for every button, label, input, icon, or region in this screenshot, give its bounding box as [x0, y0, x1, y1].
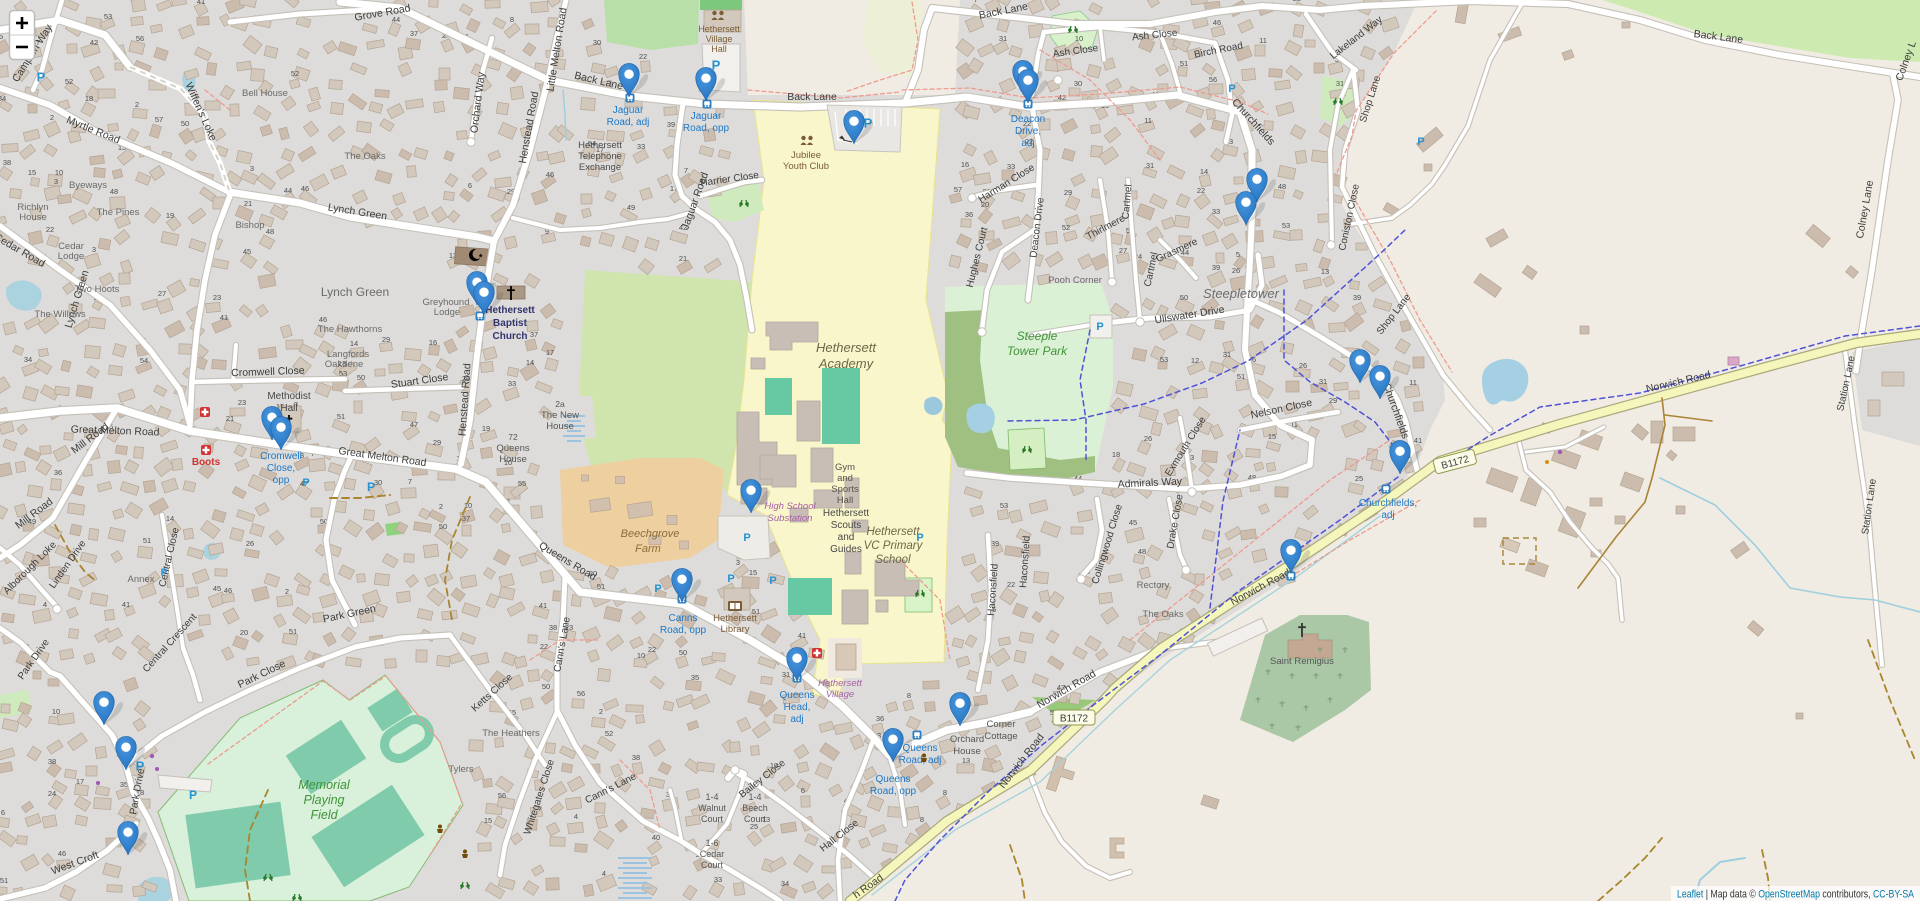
svg-text:Head,: Head,	[784, 702, 811, 713]
svg-text:P: P	[769, 575, 776, 587]
svg-text:P: P	[1417, 136, 1424, 148]
svg-text:31: 31	[1223, 350, 1231, 359]
svg-text:14: 14	[166, 514, 174, 523]
svg-text:Academy: Academy	[818, 356, 875, 371]
svg-text:Memorial: Memorial	[298, 778, 351, 792]
svg-text:39: 39	[667, 120, 675, 129]
svg-text:2: 2	[285, 587, 289, 596]
svg-text:14: 14	[350, 339, 358, 348]
svg-text:27: 27	[1119, 246, 1127, 255]
svg-text:Queens: Queens	[496, 443, 530, 454]
svg-text:4: 4	[43, 600, 47, 609]
svg-text:Gym: Gym	[835, 462, 855, 473]
svg-text:46: 46	[319, 315, 327, 324]
svg-text:2: 2	[135, 100, 139, 109]
svg-text:Cedar: Cedar	[700, 849, 725, 859]
svg-text:Guides: Guides	[830, 544, 862, 555]
svg-text:48: 48	[1278, 182, 1286, 191]
svg-text:42: 42	[90, 38, 98, 47]
svg-text:P: P	[1096, 321, 1103, 333]
svg-text:Youth Club: Youth Club	[783, 161, 829, 172]
svg-text:2: 2	[50, 113, 54, 122]
svg-text:Jubilee: Jubilee	[791, 150, 821, 161]
svg-text:6: 6	[468, 181, 472, 190]
svg-text:34: 34	[24, 355, 32, 364]
svg-text:6: 6	[1, 808, 5, 817]
svg-text:Exchange: Exchange	[579, 162, 621, 173]
svg-text:21: 21	[679, 254, 687, 263]
svg-text:High School: High School	[764, 501, 816, 512]
svg-text:55: 55	[518, 479, 526, 488]
svg-text:24: 24	[48, 789, 56, 798]
svg-text:33: 33	[714, 875, 722, 884]
svg-text:Cromwell Close: Cromwell Close	[231, 365, 305, 380]
svg-text:Boots: Boots	[192, 457, 221, 468]
svg-text:18: 18	[85, 94, 93, 103]
svg-text:22: 22	[1007, 580, 1015, 589]
svg-text:Library: Library	[720, 624, 749, 635]
svg-text:Baptist: Baptist	[493, 318, 528, 329]
svg-text:14: 14	[526, 358, 534, 367]
svg-text:41: 41	[197, 0, 205, 6]
svg-text:48: 48	[110, 187, 118, 196]
svg-text:2: 2	[439, 502, 443, 511]
svg-text:Drive,: Drive,	[1015, 126, 1041, 137]
svg-text:Road, opp: Road, opp	[683, 123, 730, 134]
svg-text:2: 2	[599, 707, 603, 716]
svg-text:36: 36	[54, 468, 62, 477]
svg-text:Close,: Close,	[267, 463, 295, 474]
svg-text:Two Hoots: Two Hoots	[75, 284, 120, 295]
svg-text:1-6: 1-6	[705, 838, 718, 848]
svg-text:14: 14	[135, 0, 143, 1]
svg-text:11: 11	[1409, 378, 1417, 387]
svg-text:40: 40	[652, 833, 660, 842]
svg-text:41: 41	[539, 601, 547, 610]
svg-text:17: 17	[546, 348, 554, 357]
svg-text:31: 31	[1319, 377, 1327, 386]
svg-text:Cromwell: Cromwell	[260, 451, 302, 462]
svg-text:Oakdene: Oakdene	[325, 359, 364, 370]
svg-text:Playing: Playing	[304, 793, 345, 807]
svg-text:21: 21	[244, 199, 252, 208]
svg-text:Corner: Corner	[986, 719, 1015, 730]
svg-text:51: 51	[0, 876, 8, 885]
svg-text:Leaflet | Map data © OpenStree: Leaflet | Map data © OpenStreetMap contr…	[1677, 889, 1915, 901]
svg-text:P: P	[654, 583, 661, 595]
svg-text:House: House	[499, 454, 526, 465]
svg-text:Deacon: Deacon	[1011, 114, 1045, 125]
svg-text:Court: Court	[701, 860, 724, 870]
svg-text:48: 48	[266, 227, 274, 236]
svg-text:Saint Remigius: Saint Remigius	[1270, 656, 1334, 667]
svg-text:50: 50	[357, 373, 365, 382]
svg-text:Field: Field	[310, 808, 338, 822]
svg-text:11: 11	[1259, 36, 1267, 45]
svg-text:Farm: Farm	[635, 543, 661, 555]
svg-text:P: P	[37, 70, 46, 85]
svg-text:House: House	[953, 746, 980, 757]
svg-text:adj: adj	[1021, 138, 1034, 149]
svg-text:3: 3	[54, 177, 58, 186]
svg-text:51: 51	[337, 412, 345, 421]
svg-text:33: 33	[1212, 207, 1220, 216]
svg-text:51: 51	[289, 627, 297, 636]
svg-text:Church: Church	[493, 331, 528, 342]
svg-text:Pooh Corner: Pooh Corner	[1048, 275, 1102, 286]
svg-text:31: 31	[1146, 161, 1154, 170]
svg-text:26: 26	[246, 539, 254, 548]
svg-text:39: 39	[991, 539, 999, 548]
svg-text:45: 45	[1129, 518, 1137, 527]
svg-text:39: 39	[1212, 263, 1220, 272]
svg-text:31: 31	[782, 670, 790, 679]
svg-text:50: 50	[439, 522, 447, 531]
svg-text:7: 7	[974, 0, 978, 4]
svg-text:Substation: Substation	[768, 513, 813, 524]
svg-text:The Oaks: The Oaks	[1142, 609, 1183, 620]
svg-text:36: 36	[965, 210, 973, 219]
svg-text:Queens: Queens	[875, 774, 910, 785]
svg-text:Telephone: Telephone	[578, 151, 622, 162]
svg-text:36: 36	[876, 714, 884, 723]
svg-text:Walnut: Walnut	[698, 803, 726, 813]
svg-text:15: 15	[749, 568, 757, 577]
svg-text:Hall: Hall	[837, 495, 853, 506]
svg-text:33: 33	[1007, 162, 1015, 171]
svg-text:2a: 2a	[555, 399, 565, 409]
svg-text:22: 22	[648, 645, 656, 654]
svg-text:52: 52	[291, 69, 299, 78]
svg-text:Hall: Hall	[280, 403, 297, 414]
svg-text:38: 38	[3, 158, 11, 167]
svg-text:41: 41	[220, 313, 228, 322]
svg-text:The Oaks: The Oaks	[344, 151, 385, 162]
svg-text:Tower Park: Tower Park	[1007, 344, 1068, 358]
svg-text:adj: adj	[1381, 510, 1394, 521]
svg-text:Churchfields,: Churchfields,	[1359, 498, 1417, 509]
svg-text:50: 50	[679, 648, 687, 657]
svg-text:38: 38	[549, 623, 557, 632]
svg-text:P: P	[1228, 83, 1235, 95]
svg-text:13: 13	[962, 756, 970, 765]
svg-text:Hall: Hall	[711, 44, 727, 54]
svg-text:10: 10	[637, 651, 645, 660]
svg-text:Jaguar: Jaguar	[613, 105, 644, 116]
svg-text:Road, opp: Road, opp	[870, 786, 917, 797]
svg-text:Hethersett: Hethersett	[578, 140, 622, 151]
svg-text:57: 57	[954, 185, 962, 194]
svg-text:29: 29	[1064, 188, 1072, 197]
svg-text:Bishop: Bishop	[235, 220, 264, 231]
svg-text:52: 52	[605, 729, 613, 738]
svg-text:23: 23	[213, 293, 221, 302]
svg-text:29: 29	[433, 438, 441, 447]
svg-text:19: 19	[482, 424, 490, 433]
svg-text:P: P	[189, 788, 197, 802]
svg-text:33: 33	[508, 379, 516, 388]
svg-text:Village: Village	[706, 34, 733, 44]
svg-text:The New: The New	[541, 410, 579, 421]
svg-text:72: 72	[508, 432, 518, 442]
svg-text:1-4: 1-4	[705, 792, 718, 802]
svg-text:50: 50	[181, 119, 189, 128]
svg-text:3: 3	[736, 558, 740, 567]
svg-text:46: 46	[1213, 18, 1221, 27]
svg-text:Hethersett: Hethersett	[713, 613, 757, 624]
svg-text:Lodge: Lodge	[58, 251, 84, 262]
svg-text:opp: opp	[273, 475, 290, 486]
svg-text:41: 41	[1414, 436, 1422, 445]
svg-text:Lodge: Lodge	[434, 307, 460, 318]
svg-text:VC Primary: VC Primary	[864, 540, 924, 552]
svg-text:Annex: Annex	[128, 574, 155, 585]
svg-text:25: 25	[1355, 474, 1363, 483]
svg-text:48: 48	[1138, 547, 1146, 556]
svg-text:4: 4	[602, 869, 606, 878]
svg-text:22: 22	[1293, 0, 1301, 3]
svg-text:Scouts: Scouts	[831, 520, 862, 531]
svg-text:37: 37	[410, 29, 418, 38]
svg-text:33: 33	[637, 142, 645, 151]
svg-text:26: 26	[1232, 266, 1240, 275]
svg-text:22: 22	[1197, 186, 1205, 195]
svg-text:21: 21	[226, 414, 234, 423]
svg-text:7: 7	[408, 477, 412, 486]
svg-text:57: 57	[155, 115, 163, 124]
svg-text:10: 10	[52, 707, 60, 716]
svg-text:1-4: 1-4	[748, 792, 761, 802]
svg-text:37: 37	[530, 330, 538, 339]
svg-text:51: 51	[1237, 372, 1245, 381]
svg-text:The Hawthorns: The Hawthorns	[318, 324, 383, 335]
svg-text:38: 38	[632, 753, 640, 762]
svg-text:8: 8	[943, 788, 947, 797]
svg-text:56: 56	[136, 34, 144, 43]
svg-text:P: P	[743, 532, 750, 544]
svg-text:50: 50	[542, 682, 550, 691]
svg-text:38: 38	[48, 757, 56, 766]
svg-text:56: 56	[498, 791, 506, 800]
svg-text:13: 13	[1321, 267, 1329, 276]
svg-text:41: 41	[798, 631, 806, 640]
svg-text:P: P	[161, 568, 168, 579]
svg-text:45: 45	[243, 247, 251, 256]
svg-text:4: 4	[574, 812, 578, 821]
svg-text:52: 52	[1062, 223, 1070, 232]
svg-text:P: P	[302, 477, 309, 489]
svg-text:Jaguar: Jaguar	[691, 111, 722, 122]
svg-text:6: 6	[801, 786, 805, 795]
svg-text:Road, opp: Road, opp	[660, 625, 707, 636]
svg-text:51: 51	[1180, 59, 1188, 68]
svg-text:45: 45	[213, 584, 221, 593]
svg-text:34: 34	[0, 94, 6, 103]
svg-text:31: 31	[999, 34, 1007, 43]
svg-text:49: 49	[627, 203, 635, 212]
svg-text:15: 15	[484, 816, 492, 825]
svg-text:3: 3	[250, 164, 254, 173]
svg-text:Back Lane: Back Lane	[787, 91, 837, 103]
svg-text:Village: Village	[826, 689, 854, 700]
svg-text:51: 51	[143, 536, 151, 545]
svg-text:8: 8	[907, 691, 911, 700]
svg-text:Bell House: Bell House	[242, 88, 288, 99]
svg-text:The Heathers: The Heathers	[482, 728, 540, 739]
svg-text:17: 17	[76, 777, 84, 786]
svg-text:50: 50	[1180, 293, 1188, 302]
svg-text:8: 8	[920, 815, 924, 824]
svg-text:Court: Court	[701, 814, 724, 824]
svg-text:Court: Court	[744, 814, 767, 824]
svg-text:46: 46	[546, 170, 554, 179]
svg-text:29: 29	[1329, 396, 1337, 405]
svg-text:53: 53	[1000, 501, 1008, 510]
svg-text:44: 44	[284, 186, 292, 195]
svg-text:Lynch Green: Lynch Green	[321, 285, 389, 299]
svg-text:School: School	[875, 554, 911, 566]
svg-text:Methodist: Methodist	[267, 391, 311, 402]
svg-text:Road, adj: Road, adj	[899, 755, 942, 766]
svg-text:46: 46	[301, 184, 309, 193]
svg-text:Rectory: Rectory	[1137, 580, 1170, 591]
svg-text:56: 56	[1209, 75, 1217, 84]
svg-text:8: 8	[510, 15, 514, 24]
svg-text:30: 30	[1074, 79, 1082, 88]
svg-text:10: 10	[55, 168, 63, 177]
svg-text:5: 5	[1236, 250, 1240, 259]
svg-text:Orchard: Orchard	[950, 734, 984, 745]
svg-text:12: 12	[1191, 356, 1199, 365]
svg-text:39: 39	[1353, 293, 1361, 302]
svg-text:Hethersett: Hethersett	[698, 24, 740, 34]
svg-text:30: 30	[593, 38, 601, 47]
svg-text:Hethersett: Hethersett	[823, 508, 869, 519]
svg-text:56: 56	[577, 689, 585, 698]
svg-text:15: 15	[1268, 432, 1276, 441]
svg-text:Hethersett: Hethersett	[818, 678, 862, 689]
svg-text:34: 34	[781, 879, 789, 888]
svg-text:41: 41	[122, 600, 130, 609]
svg-text:10: 10	[1075, 34, 1083, 43]
svg-text:Hethersett: Hethersett	[866, 526, 920, 538]
svg-text:The Pines: The Pines	[97, 207, 140, 218]
svg-text:Sports: Sports	[831, 484, 859, 495]
svg-text:53: 53	[1282, 221, 1290, 230]
svg-text:Tylers: Tylers	[448, 764, 474, 775]
svg-text:Hethersett: Hethersett	[816, 340, 877, 355]
svg-text:47: 47	[410, 420, 418, 429]
svg-text:54: 54	[140, 356, 148, 365]
svg-text:53: 53	[1160, 355, 1168, 364]
svg-text:37: 37	[462, 514, 470, 523]
svg-text:Beech: Beech	[742, 803, 768, 813]
svg-text:46: 46	[58, 849, 66, 858]
svg-text:26: 26	[1299, 361, 1307, 370]
svg-text:and: and	[838, 532, 855, 543]
svg-text:7: 7	[684, 166, 688, 175]
svg-text:3: 3	[92, 245, 96, 254]
svg-text:22: 22	[46, 225, 54, 234]
svg-text:19: 19	[166, 211, 174, 220]
svg-text:Beechgrove: Beechgrove	[621, 528, 680, 540]
svg-text:Queens: Queens	[779, 690, 814, 701]
svg-text:Steeple: Steeple	[1017, 329, 1058, 343]
svg-text:14: 14	[1200, 167, 1208, 176]
svg-text:15: 15	[28, 168, 36, 177]
svg-text:P: P	[916, 532, 923, 544]
svg-text:26: 26	[1144, 434, 1152, 443]
svg-text:The Willows: The Willows	[34, 309, 85, 320]
svg-text:and: and	[837, 473, 853, 484]
svg-text:23: 23	[238, 398, 246, 407]
svg-text:P: P	[727, 573, 734, 585]
svg-text:P: P	[367, 480, 375, 494]
svg-text:46: 46	[224, 586, 232, 595]
svg-text:House: House	[546, 421, 573, 432]
svg-text:22: 22	[639, 52, 647, 61]
svg-text:16: 16	[961, 160, 969, 169]
svg-text:20: 20	[240, 628, 248, 637]
svg-text:House: House	[19, 212, 46, 223]
svg-text:Steepletower: Steepletower	[1203, 286, 1280, 301]
svg-text:B1172: B1172	[1060, 714, 1089, 725]
svg-text:18: 18	[1112, 450, 1120, 459]
svg-text:★: ★	[478, 253, 483, 260]
svg-text:Byeways: Byeways	[69, 180, 107, 191]
svg-text:35: 35	[691, 673, 699, 682]
svg-text:52: 52	[65, 77, 73, 86]
svg-text:30: 30	[374, 478, 382, 487]
svg-text:53: 53	[104, 12, 112, 21]
svg-text:16: 16	[429, 338, 437, 347]
svg-text:Road, adj: Road, adj	[607, 117, 650, 128]
svg-text:Canns: Canns	[669, 613, 698, 624]
svg-text:adj: adj	[790, 714, 803, 725]
svg-text:11: 11	[1144, 116, 1152, 125]
svg-text:27: 27	[158, 289, 166, 298]
svg-text:Cottage: Cottage	[984, 731, 1017, 742]
svg-text:22: 22	[540, 642, 548, 651]
svg-text:29: 29	[382, 335, 390, 344]
